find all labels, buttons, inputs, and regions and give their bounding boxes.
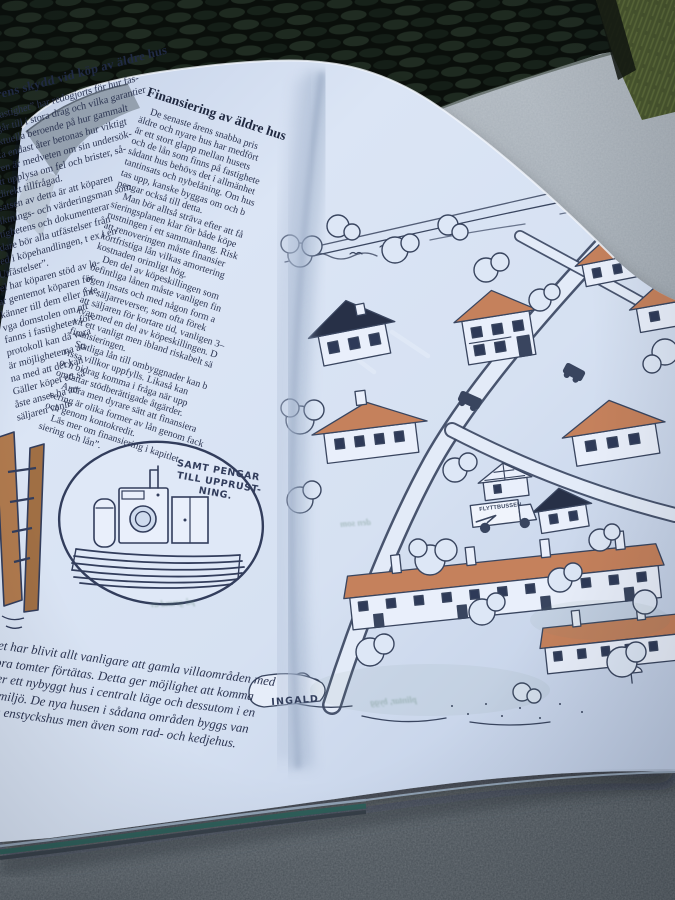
photo-of-open-book: Köparens skydd vid köp av äldre hus “köp… <box>0 0 675 900</box>
show-through-text: den som <box>340 517 371 529</box>
